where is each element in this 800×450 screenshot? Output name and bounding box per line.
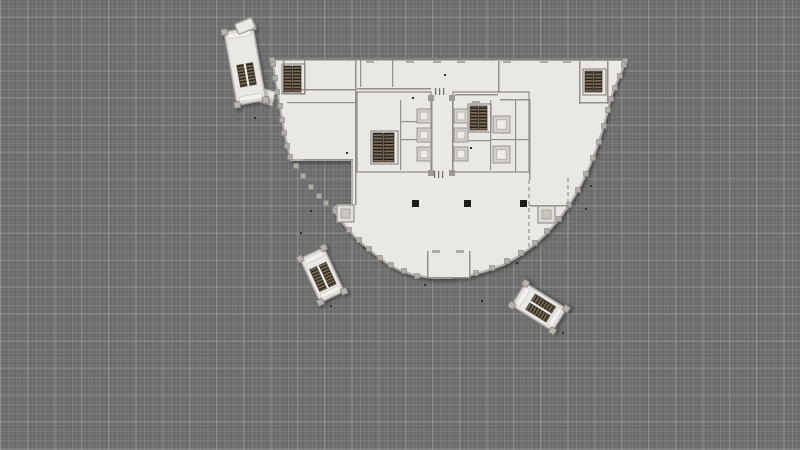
facade-column bbox=[294, 164, 299, 169]
facade-column bbox=[597, 140, 602, 145]
wall bbox=[579, 60, 581, 104]
speck bbox=[590, 185, 592, 187]
facade-column bbox=[602, 124, 607, 129]
pod-post bbox=[233, 101, 240, 108]
facade-column bbox=[309, 185, 314, 190]
stair-flight bbox=[470, 106, 478, 130]
facade-column bbox=[606, 108, 611, 113]
facade-column bbox=[533, 241, 538, 246]
stair-flight bbox=[373, 133, 383, 162]
structural-column bbox=[464, 200, 471, 207]
facade-column bbox=[545, 229, 550, 234]
facade-column bbox=[278, 104, 283, 109]
facade-column bbox=[505, 259, 510, 264]
elevator-shaft bbox=[417, 128, 431, 142]
structural-column bbox=[520, 200, 527, 207]
corridor-mark bbox=[443, 88, 444, 95]
planter bbox=[538, 206, 555, 223]
facade-column bbox=[576, 188, 581, 193]
facade-column bbox=[357, 238, 362, 243]
escalator-southwest bbox=[296, 244, 348, 307]
corridor-mark bbox=[438, 171, 439, 178]
speck bbox=[470, 147, 472, 149]
planter-inner bbox=[542, 210, 551, 219]
corridor-mark bbox=[439, 88, 440, 95]
wall bbox=[392, 60, 393, 87]
wall bbox=[468, 140, 490, 141]
door-tick bbox=[457, 60, 465, 63]
facade-column bbox=[490, 266, 495, 271]
elevator-car bbox=[457, 150, 465, 158]
door-tick bbox=[432, 250, 440, 253]
wall bbox=[427, 251, 429, 278]
elevator-shaft bbox=[493, 116, 510, 133]
facade-column bbox=[519, 251, 524, 256]
planter-inner bbox=[341, 209, 350, 218]
facade-column bbox=[378, 256, 383, 261]
stair-flight bbox=[384, 133, 394, 162]
wall bbox=[455, 94, 498, 96]
wall bbox=[357, 88, 431, 90]
wall bbox=[469, 251, 471, 278]
elevator-shaft bbox=[454, 147, 468, 161]
corridor-mark bbox=[435, 88, 436, 95]
elevator-car bbox=[420, 112, 428, 120]
stair-flight bbox=[284, 66, 292, 92]
drawing-canvas bbox=[0, 0, 800, 450]
wall-cap bbox=[428, 170, 434, 176]
speck bbox=[300, 232, 302, 234]
wall bbox=[579, 102, 608, 104]
facade-column bbox=[324, 201, 329, 206]
wall bbox=[427, 277, 470, 279]
elevator-shaft bbox=[417, 147, 431, 161]
pod-post bbox=[221, 28, 228, 35]
wall-cap bbox=[428, 95, 434, 101]
speck bbox=[424, 284, 426, 286]
facade-column bbox=[285, 144, 290, 149]
elevator-car bbox=[457, 131, 465, 139]
speck bbox=[516, 262, 518, 264]
wall bbox=[355, 60, 357, 205]
facade-column bbox=[613, 86, 618, 91]
facade-column bbox=[557, 217, 562, 222]
wall bbox=[490, 139, 529, 140]
wall bbox=[400, 121, 417, 122]
door-tick bbox=[406, 60, 414, 63]
wall bbox=[360, 60, 361, 87]
facade-column bbox=[273, 76, 278, 81]
facade-column bbox=[317, 194, 322, 199]
elevator-shaft bbox=[417, 109, 431, 123]
wall bbox=[287, 102, 355, 103]
vestibule bbox=[428, 252, 469, 277]
door-tick bbox=[563, 60, 571, 63]
facade-column bbox=[282, 131, 287, 136]
elevator-car bbox=[497, 120, 507, 130]
facade-column bbox=[288, 155, 293, 160]
door-tick bbox=[433, 60, 441, 63]
facade-column bbox=[402, 269, 407, 274]
door-tick bbox=[540, 60, 548, 63]
speck bbox=[444, 74, 446, 76]
facade-column bbox=[584, 172, 589, 177]
elevator-car bbox=[420, 131, 428, 139]
facade-column bbox=[280, 118, 285, 123]
speck bbox=[363, 247, 365, 249]
facade-column bbox=[347, 228, 352, 233]
elevator-car bbox=[457, 112, 465, 120]
wall bbox=[303, 159, 353, 161]
wall bbox=[607, 60, 609, 104]
door-tick bbox=[472, 101, 480, 104]
wall-cap bbox=[449, 170, 455, 176]
wall-cap bbox=[449, 95, 455, 101]
stair-flight bbox=[293, 66, 301, 92]
door-tick bbox=[366, 60, 374, 63]
speck bbox=[412, 97, 414, 99]
elevator-car bbox=[420, 150, 428, 158]
speck bbox=[330, 305, 332, 307]
elevator-car bbox=[497, 150, 507, 160]
elevator-shaft bbox=[493, 146, 510, 163]
speck bbox=[562, 332, 564, 334]
corridor-mark bbox=[434, 171, 435, 178]
facade-column bbox=[301, 174, 306, 179]
planter bbox=[337, 205, 354, 222]
facade-column bbox=[622, 63, 627, 68]
stair-tower-northwest bbox=[221, 23, 270, 108]
stair-flight bbox=[594, 71, 602, 92]
speck bbox=[481, 300, 483, 302]
speck bbox=[254, 117, 256, 119]
facade-column bbox=[415, 274, 420, 279]
facade-column bbox=[618, 74, 623, 79]
door-tick bbox=[456, 250, 464, 253]
facade-column bbox=[609, 97, 614, 102]
door-tick bbox=[503, 60, 511, 63]
facade-column bbox=[591, 156, 596, 161]
escalator-southeast bbox=[507, 279, 570, 335]
elevator-shaft bbox=[454, 128, 468, 142]
wall bbox=[400, 139, 417, 140]
pod-post bbox=[262, 96, 269, 103]
speck bbox=[346, 152, 348, 154]
facade-column bbox=[389, 263, 394, 268]
vestibule-floor bbox=[428, 252, 469, 277]
elevator-shaft bbox=[454, 109, 468, 123]
facade-column bbox=[367, 247, 372, 252]
stair-flight bbox=[479, 106, 487, 130]
facade-column bbox=[271, 62, 276, 67]
structural-column bbox=[412, 200, 419, 207]
speck bbox=[310, 210, 312, 212]
floor-plan-drawing bbox=[0, 0, 800, 450]
top-facade-wall bbox=[272, 58, 626, 61]
wall bbox=[400, 100, 401, 170]
wall bbox=[515, 99, 516, 172]
facade-column bbox=[474, 271, 479, 276]
corridor-mark bbox=[442, 171, 443, 178]
stair-flight bbox=[585, 71, 593, 92]
speck bbox=[585, 208, 587, 210]
wall bbox=[498, 61, 500, 93]
